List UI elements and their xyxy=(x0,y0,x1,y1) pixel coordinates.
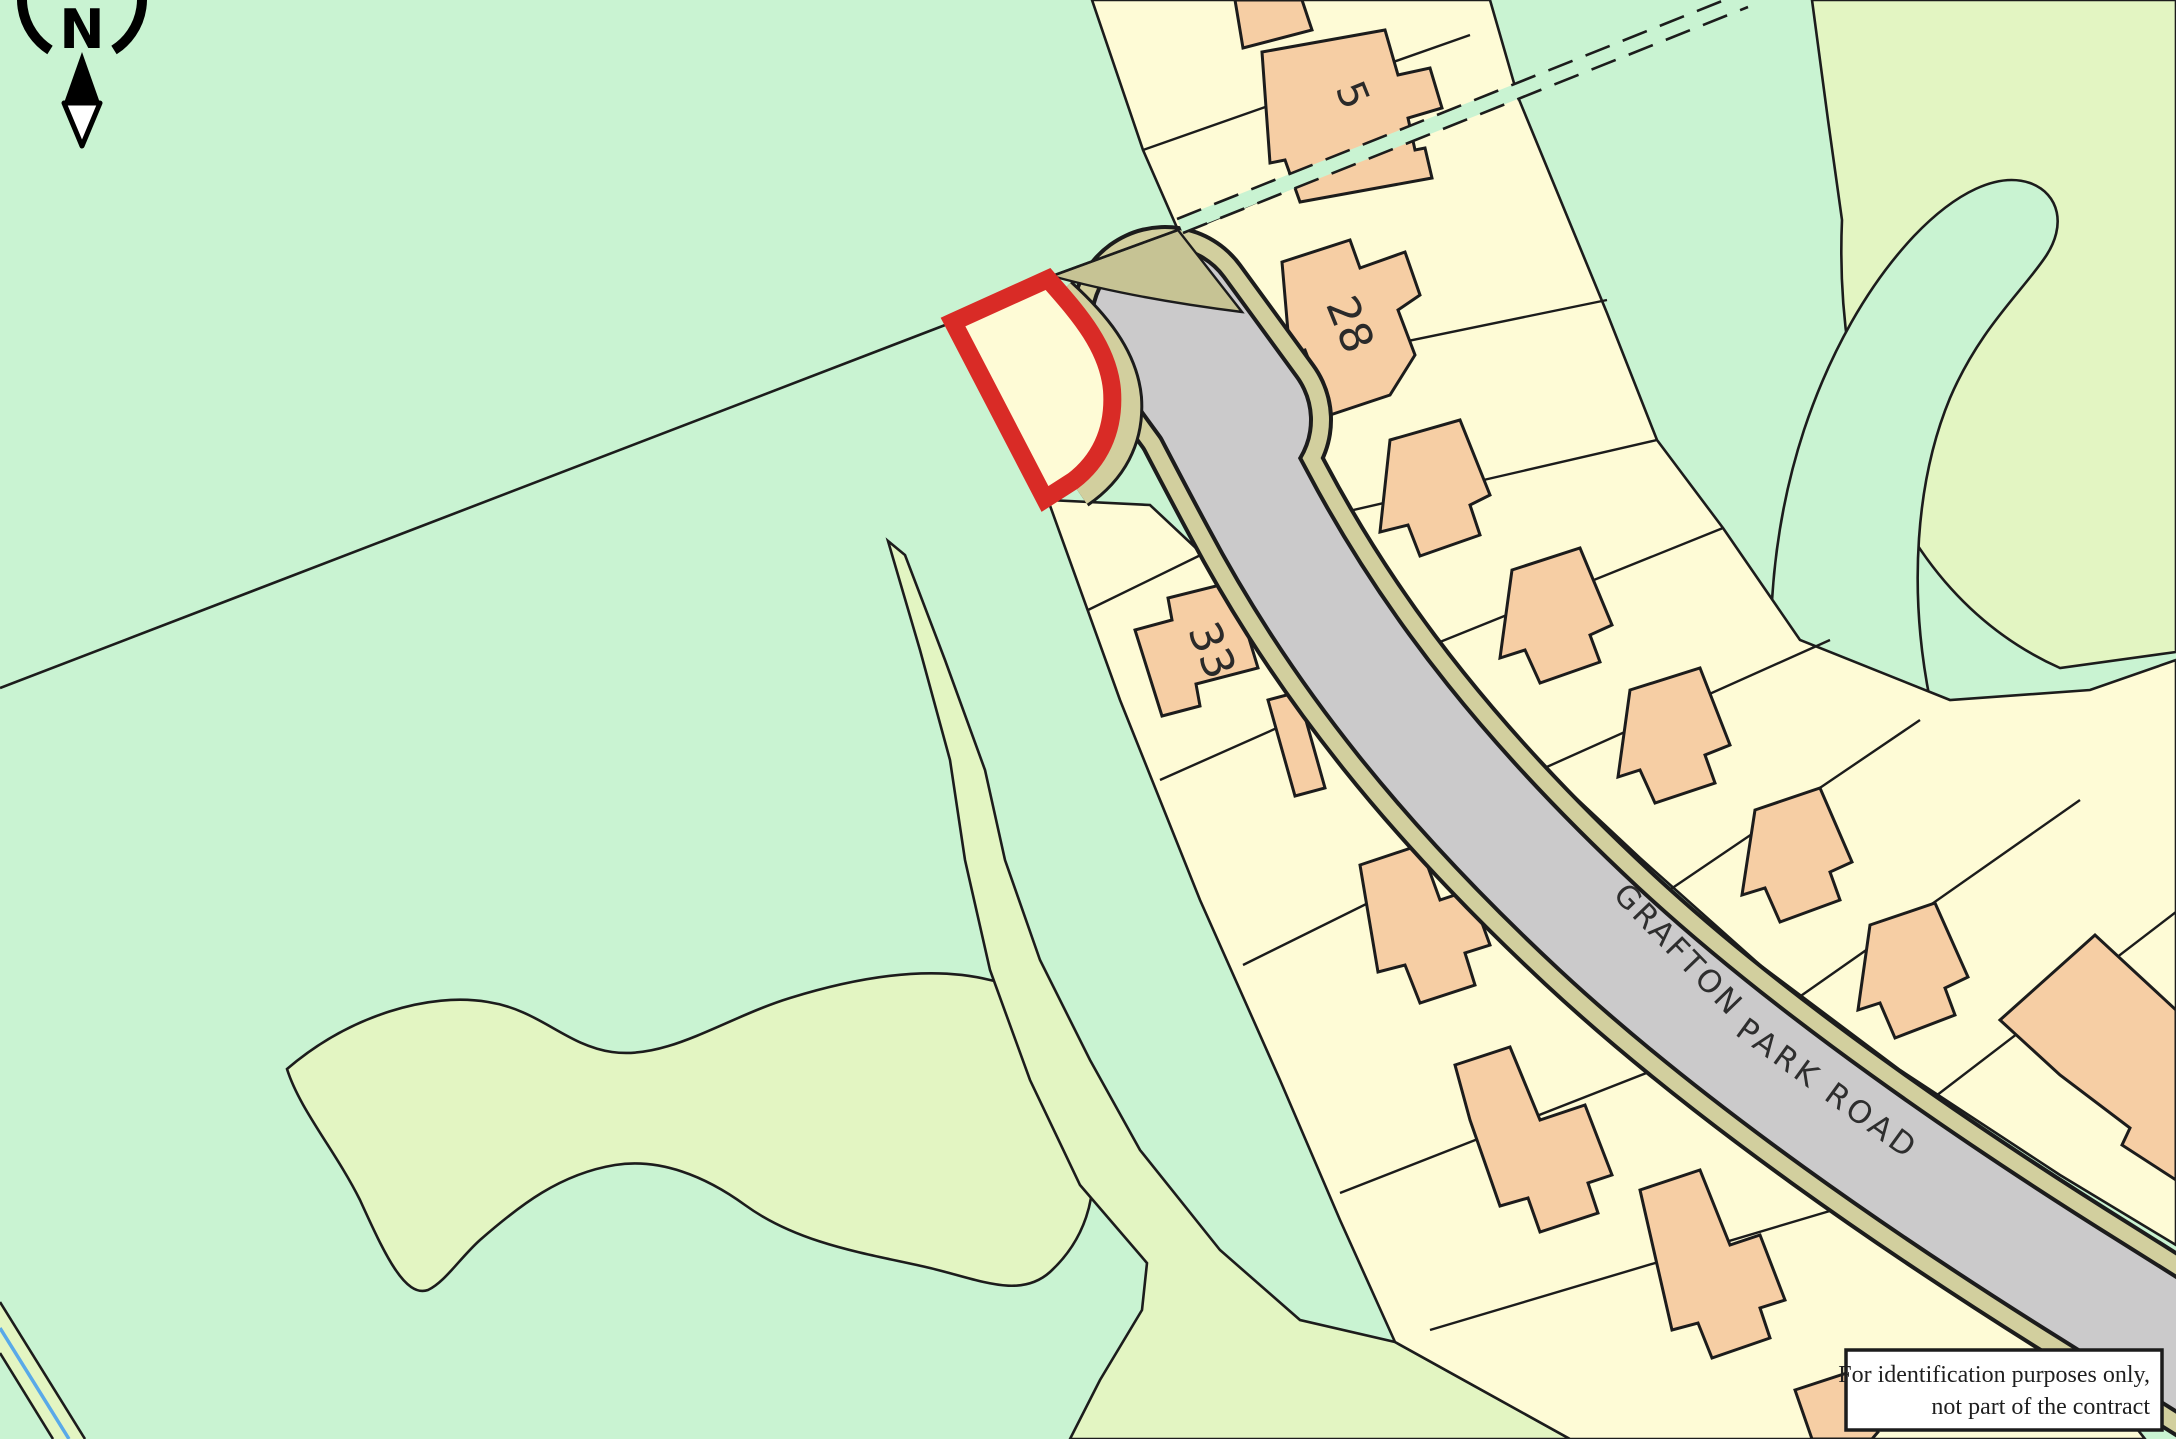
compass-n-label: N xyxy=(59,0,104,61)
site-plan-map: 5 28 33 GRAFTON PARK ROAD N For identifi… xyxy=(0,0,2176,1439)
disclaimer-line-2: not part of the contract xyxy=(1931,1394,2150,1420)
disclaimer-line-1: For identification purposes only, xyxy=(1838,1362,2150,1388)
disclaimer-box: For identification purposes only, not pa… xyxy=(1838,1350,2162,1430)
